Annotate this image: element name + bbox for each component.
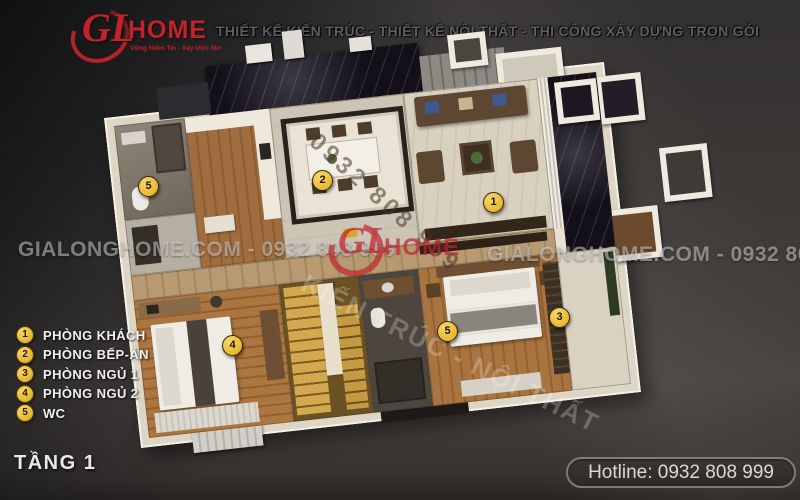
armchair	[509, 139, 538, 174]
room-legend: 1 PHÒNG KHÁCH 2 PHÒNG BẾP-ĂN 3 PHÒNG NGỦ…	[16, 327, 149, 421]
desk	[138, 297, 201, 319]
detached-window-frame	[659, 143, 713, 202]
legend-item-phong-ngu-1: 3 PHÒNG NGỦ 1	[16, 366, 149, 382]
table-plant	[470, 151, 483, 164]
dining-chair	[357, 121, 372, 134]
desk-lamp	[146, 304, 159, 314]
dining-chair	[331, 124, 346, 137]
legend-badge: 4	[16, 385, 34, 403]
legend-item-phong-bep-an: 2 PHÒNG BẾP-ĂN	[16, 347, 149, 363]
washbasin	[381, 282, 394, 293]
legend-item-wc: 5 WC	[16, 405, 149, 421]
poster-canvas: GL HOME Vững Niềm Tin - Xây Ước Mơ THIẾT…	[0, 0, 800, 500]
nightstand	[426, 283, 441, 298]
marker-wc-upper: 5	[138, 176, 159, 197]
pillow-tan	[458, 97, 473, 110]
legend-label: PHÒNG BẾP-ĂN	[43, 347, 149, 362]
bed	[150, 316, 239, 410]
armchair	[416, 150, 445, 185]
bed-runner	[186, 319, 215, 407]
marker-kitchen-dining: 2	[312, 170, 333, 191]
wardrobe	[260, 309, 286, 381]
shower-area	[374, 357, 426, 404]
floor-title: TẦNG 1	[14, 452, 96, 475]
legend-label: PHÒNG NGỦ 1	[43, 367, 138, 382]
ac-unit	[349, 36, 372, 52]
marker-wc-middle: 5	[437, 321, 458, 342]
ac-unit	[282, 30, 305, 60]
vanity	[363, 276, 415, 299]
watermark-center-logo: GL HOME	[328, 222, 488, 272]
legend-badge: 1	[16, 326, 34, 344]
room-bathroom	[114, 118, 195, 220]
hotline-badge: Hotline: 0932 808 999	[566, 457, 796, 488]
marker-living-room: 1	[483, 192, 504, 213]
legend-badge: 3	[16, 365, 34, 383]
legend-item-phong-khach: 1 PHÒNG KHÁCH	[16, 327, 149, 343]
roof-dark-panel	[156, 82, 211, 120]
pillow-blue	[492, 93, 507, 106]
room-bedroom-2	[134, 285, 294, 438]
skylight-frame	[447, 31, 489, 69]
bed	[443, 267, 542, 347]
legend-label: WC	[43, 406, 65, 421]
legend-label: PHÒNG KHÁCH	[43, 328, 146, 343]
watermark-logo-home: HOME	[384, 234, 460, 262]
ac-unit	[245, 43, 273, 64]
blanket	[447, 301, 541, 337]
legend-item-phong-ngu-2: 4 PHÒNG NGỦ 2	[16, 386, 149, 402]
pillows	[155, 327, 182, 407]
room-living	[403, 79, 554, 244]
window-frame	[595, 72, 646, 125]
legend-badge: 5	[16, 404, 34, 422]
cooktop	[259, 143, 272, 160]
marker-bedroom-1: 3	[549, 307, 570, 328]
coffee-table	[459, 140, 494, 175]
plant-pot	[210, 295, 223, 308]
window-frame	[554, 78, 600, 124]
gl-home-logo: GL HOME Vững Niềm Tin - Xây Ước Mơ	[70, 4, 215, 60]
watermark-logo-gl: GL	[338, 222, 389, 260]
logo-slogan: Vững Niềm Tin - Xây Ước Mơ	[130, 45, 221, 52]
shower-area	[151, 123, 186, 174]
legend-badge: 2	[16, 346, 34, 364]
watermark-band-right: GIALONGHOME.COM - 0932 808 999	[487, 243, 800, 267]
kitchen-island	[204, 214, 236, 233]
legend-label: PHÒNG NGỦ 2	[43, 386, 138, 401]
pillows	[449, 272, 530, 297]
sofa	[414, 85, 529, 127]
marker-bedroom-2: 4	[222, 335, 243, 356]
logo-home-text: HOME	[128, 18, 207, 43]
pillow-blue	[424, 101, 439, 114]
sink	[121, 131, 146, 146]
